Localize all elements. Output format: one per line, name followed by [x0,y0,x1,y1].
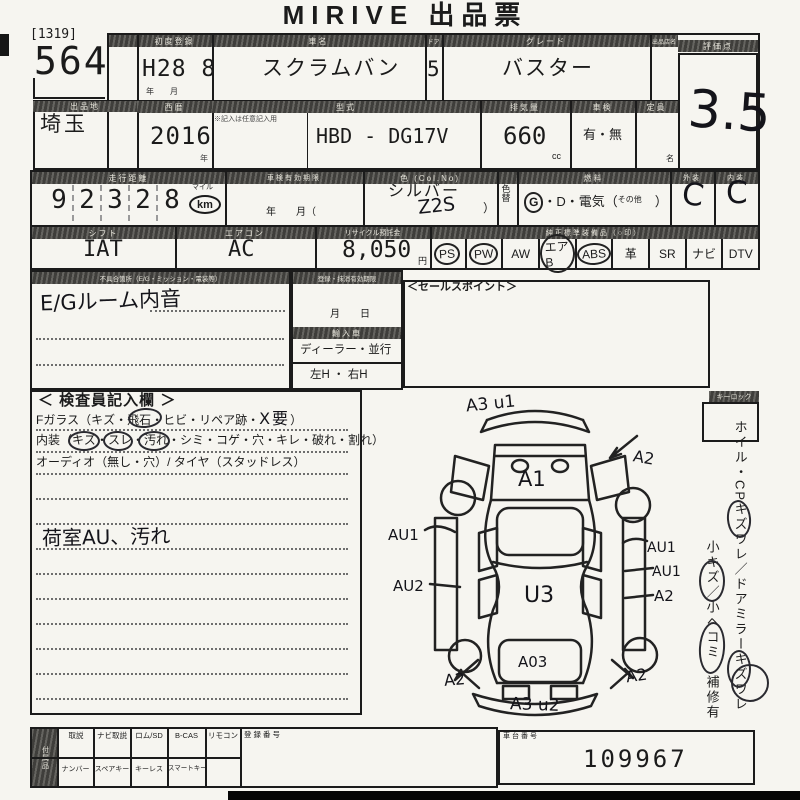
grid-line [225,170,227,225]
grid-line [442,33,444,100]
damage-label: A03 [518,655,547,671]
color-paren: ） [483,202,495,215]
odometer-digit: 2 [74,185,102,221]
equipment-sr: SR [648,239,685,268]
header-door: ドア [425,35,442,47]
model-note: ※記入は任意記入用 [214,116,277,123]
dotted-rule [36,598,348,600]
scan-artifact [0,34,9,56]
year-value: 2016 [150,124,212,149]
odometer: 9 2 3 2 8 [46,185,186,221]
equipment-airbag-circled: エアB [539,233,576,274]
damage-label: A2 [625,667,648,687]
dotted-rule [36,364,284,366]
header-import-car: 輸入車 [293,327,401,339]
recycle-fee-value: 8,050 [342,238,411,262]
equipment-abs: ABS [575,239,612,268]
header-shaken-expiry: 車検有効期限 [225,172,363,184]
damage-label: A1 [518,468,546,490]
lot-number: 564 [34,42,109,82]
damage-label: A3 u2 [510,696,560,716]
header-equipment: 純正標準装備品（○印） [430,227,758,239]
grid-line [175,225,177,270]
accessory-navi-manual: ナビ取説 [94,732,130,740]
scan-bottom-bar [228,791,800,800]
header-keylock: キーロック [709,391,759,402]
header-seller: 出品店名 [650,35,678,47]
grid-line [650,33,652,100]
equipment-ps: PS [430,239,465,268]
dotted-rule [36,648,348,650]
first-registration-value: H28 8 [142,57,216,81]
header-grade: グレード [442,35,650,47]
header-defects: 不具合箇所（E/G・ミッション・電装等） [32,272,289,284]
odometer-mile-label: マイル [192,184,213,191]
shaken-value: 有・無 [583,128,622,142]
handle-side-label: 左H ・ 右H [310,369,368,381]
dotted-rule [36,338,284,340]
year-unit: 年 [200,155,208,163]
equipment-pw: PW [465,239,502,268]
grid-line [570,101,572,170]
keylock-box [702,402,759,442]
score-value: 3.5 [686,82,772,142]
grid-line [635,101,637,170]
displacement-value: 660 [503,124,546,149]
accessory-remote: リモコン [206,732,240,740]
header-year: 西暦 [137,101,212,113]
grade-name: バスター [502,58,594,80]
grid-line [315,225,317,270]
fuel-paren: ） [642,194,668,209]
equipment-aw: AW [501,239,538,268]
header-car-name: 車名 [212,35,425,47]
sales-point-header: ＜セールスポイント＞ [407,282,517,294]
grid-line [30,757,240,759]
grid-line [240,727,242,788]
inspector-line-audio-tire: オーディオ（無し・穴）/ タイヤ（スタッドレス） [36,456,305,469]
registration-number-label: 登録番号 [244,731,282,739]
equipment-navi: ナビ [685,239,722,268]
aircon-value: AC [228,238,255,261]
equipment-row: PS PW AW エアB ABS 革 SR ナビ DTV [430,239,758,268]
grid-line [291,362,403,364]
equipment-leather: 革 [611,239,648,268]
odometer-km-unit: km [189,195,221,214]
page-title: MIRIVE 出品票 [225,2,585,29]
model-code: HBD - DG17V [316,126,448,147]
dotted-rule [36,573,348,575]
leader-tick [625,568,653,571]
inspector-line-fglass: Fガラス（キズ・飛石・ヒビ・リペア跡・X要） [36,411,302,428]
sales-point-box [403,280,710,388]
dotted-rule [36,698,348,700]
vehicle-name: スクラムバン [262,58,400,80]
header-score: 評価点 [678,40,758,52]
hand-circle [727,650,751,688]
equipment-abs-circled: ABS [576,242,611,266]
accessory-bcas: B-CAS [168,732,205,740]
damage-label: AU1 [652,565,681,580]
equipment-pw-circled: PW [469,242,499,266]
fuel-gasoline-circled: G [523,192,543,214]
color-code-hand: Z2S [417,195,456,219]
damage-label: AU1 [647,541,676,556]
first-registration-units: 年 月 [146,88,178,96]
accessory-number-plate: ナンバー [58,766,93,773]
dotted-rule [36,498,348,500]
fglass-hand-mark: X要 [259,409,290,428]
dotted-rule [36,473,348,475]
header-odometer: 走行距離 [32,172,225,184]
lot-bracket-line [33,97,105,99]
dotted-rule [36,623,348,625]
fuel-options: ・D・電気（ [543,194,617,209]
grid-line [363,170,365,225]
car-diagram [375,388,705,738]
dotted-rule [36,673,348,675]
damage-label: A2 [654,589,674,605]
hand-circle [138,431,170,451]
leader-tick [425,526,455,532]
interior-grade: C [726,177,748,210]
odometer-digit: 2 [130,185,158,221]
validity-month-day: 月 日 [330,310,370,321]
header-model-code: 型式 [212,101,480,113]
grid-line [670,170,672,225]
header-fuel: 燃料 [517,172,670,184]
shift-value: IAT [83,238,123,261]
exterior-grade: C [680,178,706,213]
odometer-digit: 3 [102,185,130,221]
odometer-digit: 9 [46,185,74,221]
header-blank [109,35,137,47]
accessory-spare-key: スペアキー [94,766,130,773]
displacement-unit: cc [552,152,561,161]
header-shaken: 車検 [570,101,635,113]
accessory-smart-key: スマートキー [168,766,205,773]
hand-circle [699,560,725,602]
header-prefecture: 出品地 [33,101,137,112]
accessory-manual: 取説 [59,732,93,740]
grid-line [307,113,308,170]
inspector-title: ＜ 検査員記入欄 ＞ [38,393,176,409]
leader-tick [625,595,653,598]
wheel-rear-left [449,640,481,672]
fuel-type: G・D・電気（その他 ） [524,192,668,213]
recycle-fee-unit: 円 [418,257,427,266]
chassis-number-value: 109967 [583,747,688,772]
damage-label: U3 [524,584,554,607]
dotted-rule [150,310,285,312]
header-first-registration: 初度登録 [137,35,212,47]
shaken-expiry-blank: 年 月（ [266,208,316,219]
hand-circle [725,499,752,539]
leader-tick [623,539,647,543]
dealer-parallel-label: ディーラー・並行 [300,344,391,356]
dotted-rule [36,451,348,453]
prefecture: 埼玉 [40,114,88,136]
hand-circle [68,431,100,451]
auction-sheet: MIRIVE 出品票 [1319] 564 埼玉 初度登録 車名 ドア グレード… [0,0,800,800]
lot-bracket-line [33,78,35,99]
cargo-note-hand: 荷室AU、汚れ [42,526,171,549]
equipment-ps-circled: PS [434,242,461,265]
capacity-unit: 名 [666,155,674,163]
damage-label: AU1 [388,528,419,544]
grid-line [480,101,482,170]
grid-line [517,170,519,225]
accessory-keyless: キーレス [131,766,167,773]
damage-label: A2 [443,671,466,690]
header-displacement: 排気量 [480,101,570,113]
header-capacity: 定員 [635,101,678,113]
door-count: 5 [427,58,440,80]
equipment-airbag: エアB [538,239,575,268]
odometer-digit: 8 [158,185,186,221]
windshield [497,508,583,555]
fuel-other-label: その他 [618,195,642,204]
chassis-number-label: 車台番号 [503,733,539,740]
equipment-dtv: DTV [721,239,758,268]
accessory-rom-sd: ロム/SD [131,732,167,740]
repaint-label: 色替 [500,184,509,202]
header-blank [497,172,517,184]
damage-label: A2 [632,448,656,468]
grid-line [714,170,716,225]
grid-line [497,170,499,225]
header-validity: 登録・抹消有効期限 [293,272,401,284]
damage-label: AU2 [393,579,424,595]
